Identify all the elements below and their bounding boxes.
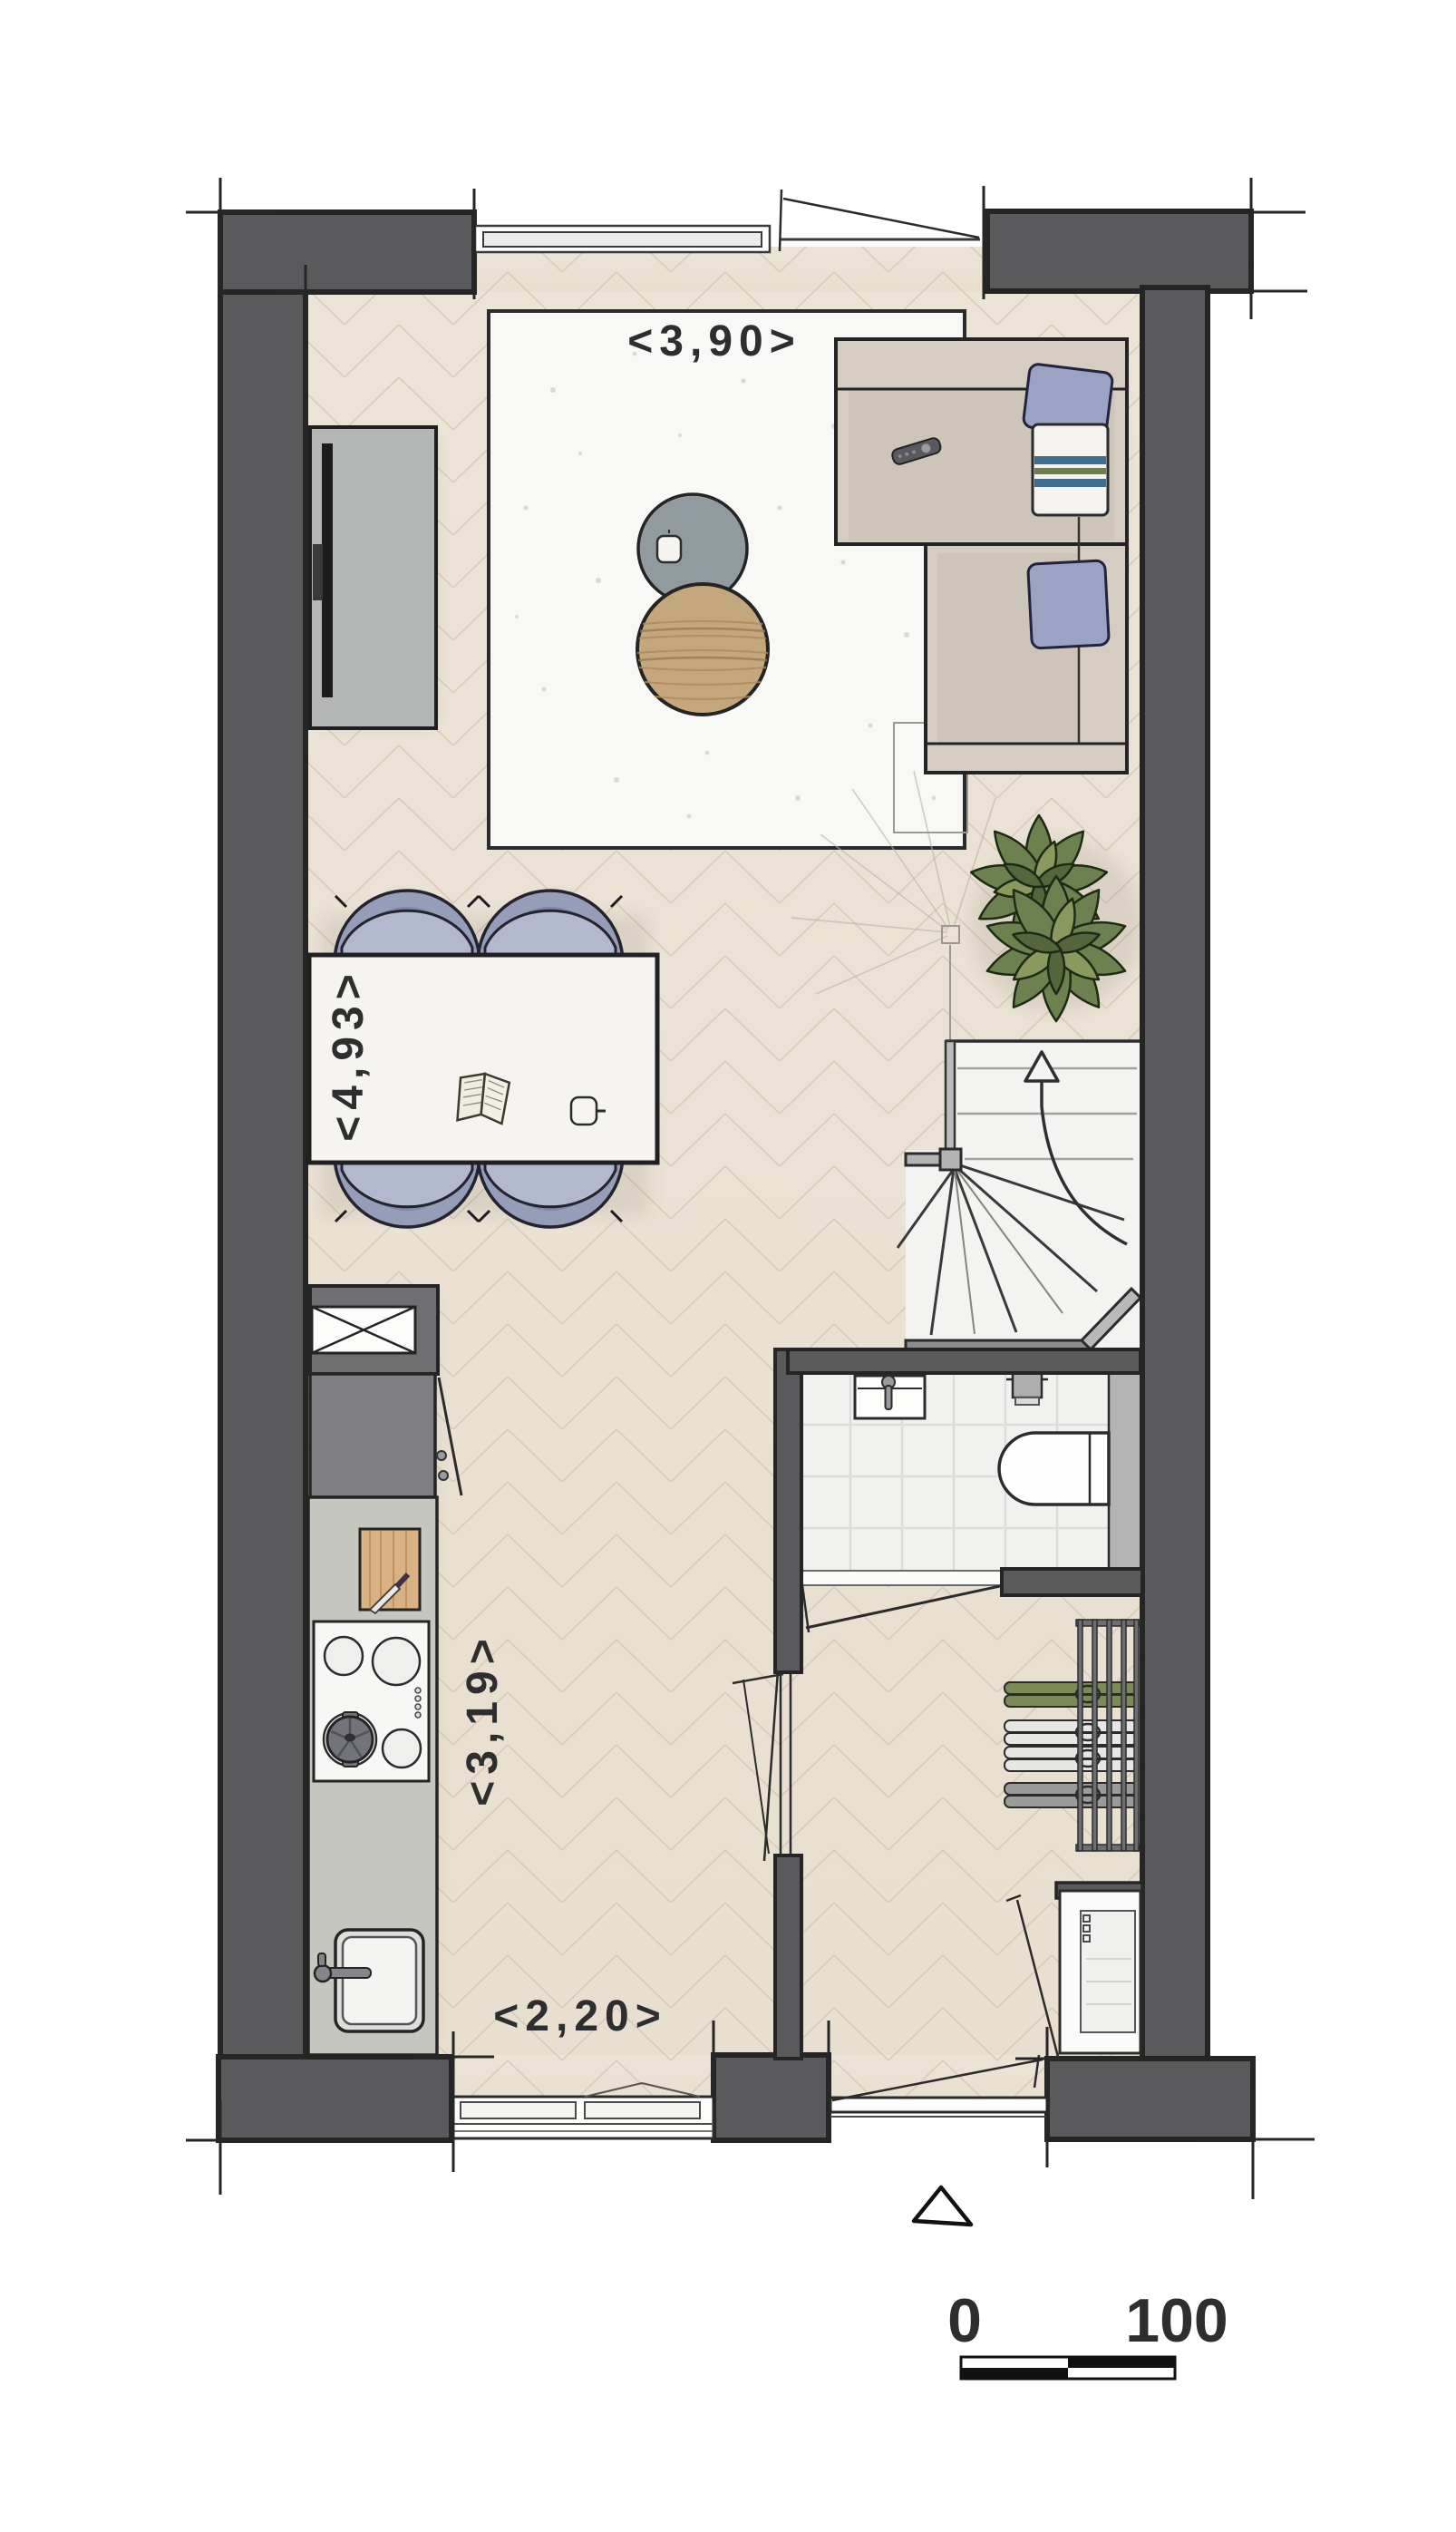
- svg-text:<3,90>: <3,90>: [627, 317, 801, 365]
- svg-text:0: 0: [947, 2286, 982, 2355]
- svg-text:<3,19>: <3,19>: [459, 1632, 507, 1806]
- svg-text:<4,93>: <4,93>: [325, 968, 373, 1141]
- svg-text:<2,20>: <2,20>: [493, 1992, 666, 2040]
- svg-text:100: 100: [1125, 2286, 1228, 2355]
